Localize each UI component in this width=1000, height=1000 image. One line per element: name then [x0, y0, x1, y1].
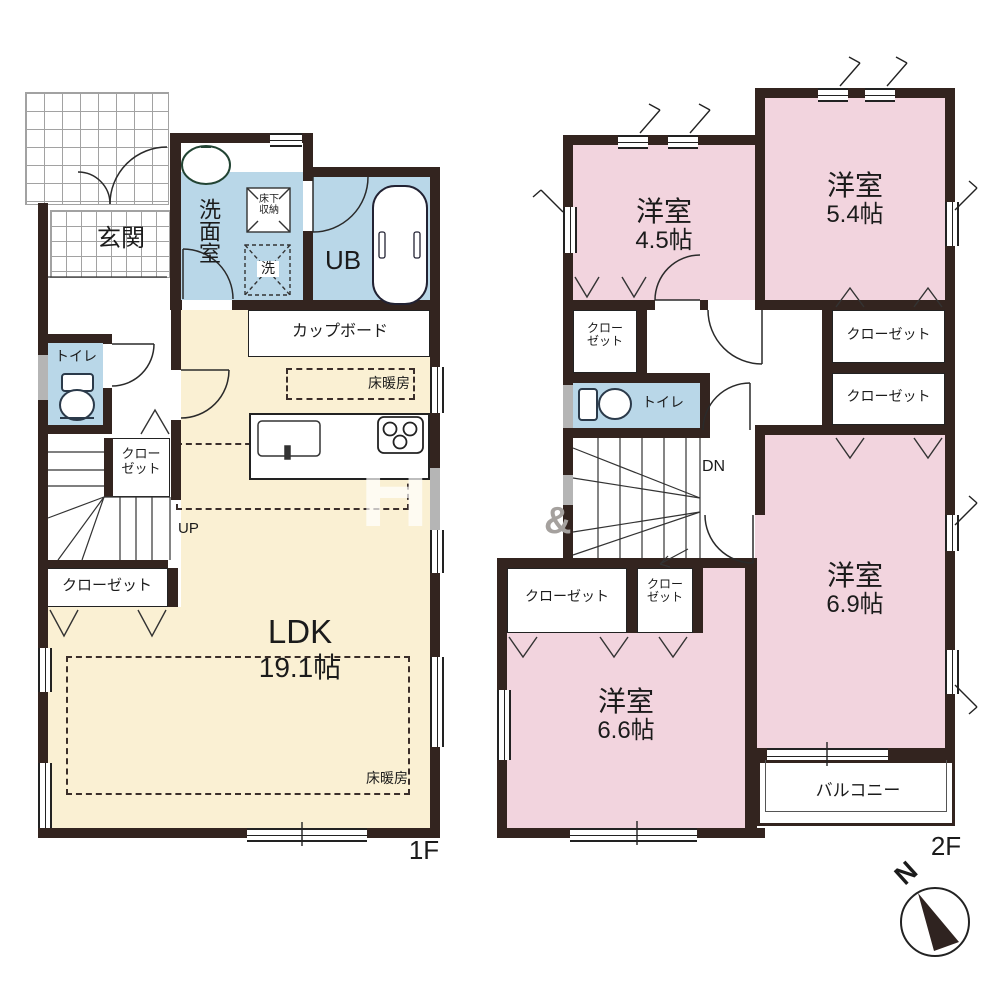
- wall: [637, 310, 647, 373]
- wall: [755, 748, 767, 760]
- unit-bath-room: [313, 177, 430, 300]
- wall: [700, 300, 708, 310]
- closet-ne-upper-label: クローゼット: [832, 327, 945, 343]
- door-arc: [708, 310, 762, 364]
- wall: [755, 88, 955, 98]
- floor-label-2f: 2F: [920, 832, 972, 861]
- compass-needle: [918, 893, 959, 951]
- wall: [38, 560, 168, 568]
- door-opening: [303, 181, 313, 231]
- cupboard-label: カップボード: [255, 323, 425, 341]
- hall-closet-line2: ゼット: [121, 461, 160, 476]
- window-shaded: [38, 355, 48, 400]
- closet-sw-small-line2: ゼット: [647, 590, 683, 604]
- wall: [171, 310, 181, 370]
- window: [38, 648, 52, 692]
- wall: [38, 334, 110, 343]
- wall: [103, 388, 112, 434]
- washer-label: 洗: [257, 261, 279, 277]
- hall-closet-label-1f: クロー ゼット: [112, 447, 170, 476]
- window: [668, 135, 698, 149]
- stairs-2f: [573, 438, 700, 567]
- wall: [700, 373, 710, 438]
- window-shaded: [563, 385, 573, 428]
- underfloor-storage-line2: 収納: [259, 205, 279, 216]
- bedroom-69-name: 洋室: [790, 560, 920, 591]
- window-shaded: [430, 468, 440, 530]
- wall: [170, 143, 181, 300]
- bedroom-45-size: 4.5帖: [600, 228, 728, 255]
- toilet-label-2f: トイレ: [635, 395, 691, 411]
- window: [945, 650, 959, 694]
- closet-sw-wide-label: クローゼット: [507, 589, 627, 605]
- door-opening: [182, 300, 232, 310]
- underfloor-storage-line1: 床下: [259, 194, 279, 205]
- window: [430, 530, 444, 573]
- wall: [103, 334, 112, 344]
- wall: [38, 425, 110, 434]
- wall: [755, 88, 765, 310]
- wall: [627, 568, 637, 633]
- wall: [38, 828, 440, 838]
- wall: [888, 748, 955, 760]
- wall: [563, 300, 655, 310]
- bedroom-66-size: 6.6帖: [560, 718, 692, 745]
- bedroom-66-name: 洋室: [560, 686, 692, 717]
- window: [945, 515, 959, 551]
- window: [563, 207, 577, 253]
- window: [497, 690, 511, 760]
- wall: [822, 363, 955, 373]
- wall: [755, 425, 955, 435]
- wall: [563, 428, 710, 438]
- entrance-porch-tiles: [25, 92, 169, 205]
- window: [430, 367, 444, 413]
- door-arc: [705, 515, 753, 563]
- wall: [563, 373, 710, 383]
- unit-bath-label: UB: [316, 246, 370, 275]
- wall: [310, 167, 440, 177]
- ldk-name-label: LDK: [225, 614, 375, 651]
- wall: [755, 435, 765, 515]
- ldk-closet-label: クローゼット: [46, 578, 168, 595]
- watermark-letter: i: [440, 458, 460, 540]
- bedroom-45-name: 洋室: [600, 196, 728, 227]
- wall: [170, 300, 182, 310]
- door-arc: [112, 344, 154, 386]
- compass: [901, 888, 969, 956]
- bedroom-66-notch: [703, 568, 745, 633]
- balcony-label: バルコニー: [788, 781, 928, 800]
- bedroom-54-name: 洋室: [790, 170, 920, 201]
- floor-heating-living-label: 床暖房: [336, 771, 408, 787]
- bedroom-69-size: 6.9帖: [790, 592, 920, 619]
- closet-ne-lower-label: クローゼット: [832, 389, 945, 405]
- window: [865, 88, 895, 102]
- stairs-down-label: DN: [702, 458, 738, 476]
- wall: [171, 420, 181, 440]
- washroom-label: 洗面室: [190, 183, 220, 278]
- window: [570, 828, 697, 842]
- window-shaded: [563, 475, 573, 505]
- window: [818, 88, 848, 102]
- floor-heating-kitchen-label: 床暖房: [338, 376, 410, 392]
- closet-sw-small-label: クロー ゼット: [637, 578, 693, 605]
- closet-nw-label: クロー ゼット: [573, 322, 637, 349]
- wall: [563, 135, 765, 145]
- window: [430, 657, 444, 747]
- hall-closet-line1: クロー: [121, 446, 160, 461]
- wall: [232, 300, 440, 310]
- wall: [745, 558, 757, 828]
- wall: [760, 300, 955, 310]
- window: [247, 828, 367, 842]
- ldk-size-label: 19.1帖: [225, 652, 375, 683]
- window: [945, 202, 959, 246]
- bedroom-54-size: 5.4帖: [790, 202, 920, 229]
- entrance-label: 玄関: [63, 226, 179, 253]
- closet-sw-small-line1: クロー: [647, 577, 683, 591]
- window: [38, 763, 52, 828]
- underfloor-storage-label: 床下 収納: [250, 194, 288, 216]
- wall: [168, 568, 178, 607]
- stairs-up-label: UP: [178, 521, 218, 538]
- door-arc: [703, 383, 750, 430]
- closet-nw-line1: クロー: [587, 321, 623, 335]
- kitchen-counter: [249, 413, 430, 480]
- floor-label-1f: 1F: [398, 836, 450, 865]
- closet-nw-line2: ゼット: [587, 334, 623, 348]
- wall: [497, 558, 755, 568]
- wall: [693, 568, 703, 633]
- floor-plan-canvas: 玄関 洗面室 床下 収納 洗 UB トイレ カップボード 床暖房 クロー ゼット…: [0, 0, 1000, 1000]
- window: [618, 135, 648, 149]
- wall: [38, 203, 48, 838]
- wall: [171, 440, 181, 500]
- window: [270, 133, 302, 147]
- toilet-label-1f: トイレ: [50, 349, 102, 365]
